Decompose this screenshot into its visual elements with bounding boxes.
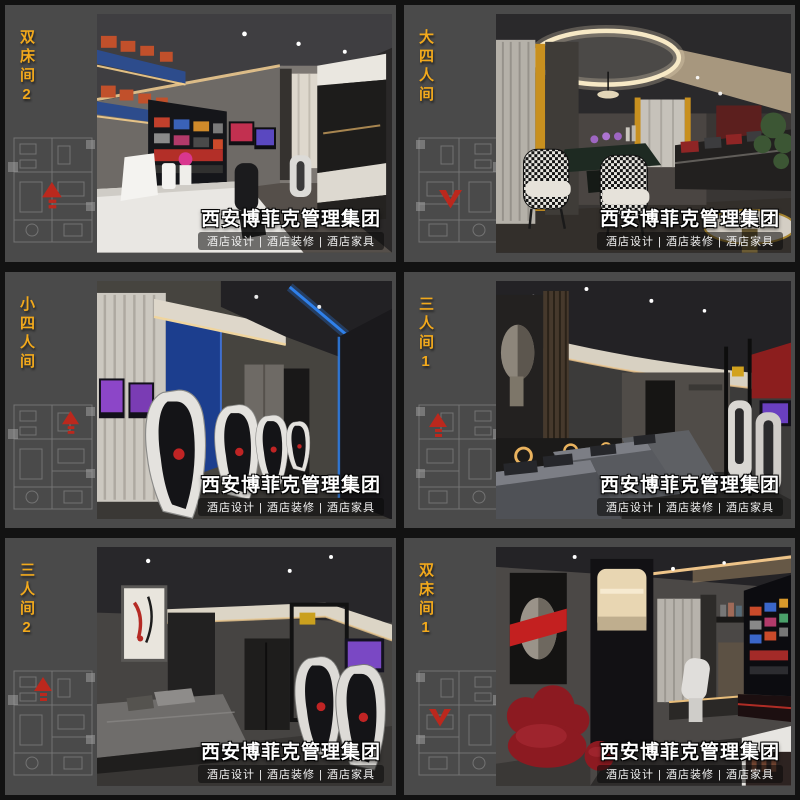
watermark-title: 西安博菲克管理集团	[201, 204, 381, 231]
room-label: 小四人间	[19, 296, 34, 372]
watermark-title: 西安博菲克管理集团	[201, 737, 381, 764]
view-arrow-icon	[429, 413, 447, 437]
room-card-triple-1: 三人间1	[404, 272, 795, 529]
watermark: 西安博菲克管理集团 酒店设计 | 酒店装修 | 酒店家具	[198, 204, 384, 250]
room-label: 三人间2	[19, 562, 34, 640]
view-arrow-icon	[34, 677, 52, 701]
view-arrow-icon	[429, 709, 451, 727]
floor-plan	[405, 398, 505, 518]
watermark: 西安博菲克管理集团 酒店设计 | 酒店装修 | 酒店家具	[198, 737, 384, 783]
watermark: 西安博菲克管理集团 酒店设计 | 酒店装修 | 酒店家具	[597, 470, 783, 516]
room-card-large-quad: 大四人间	[404, 5, 795, 262]
room-label: 三人间1	[418, 296, 433, 374]
watermark-subtitle: 酒店设计 | 酒店装修 | 酒店家具	[597, 765, 783, 783]
view-arrow-icon	[62, 411, 79, 434]
watermark-subtitle: 酒店设计 | 酒店装修 | 酒店家具	[198, 765, 384, 783]
floor-plan	[405, 131, 505, 251]
room-label: 大四人间	[418, 29, 433, 105]
room-card-small-quad: 小四人间	[5, 272, 396, 529]
watermark-title: 西安博菲克管理集团	[600, 204, 780, 231]
watermark-subtitle: 酒店设计 | 酒店装修 | 酒店家具	[198, 498, 384, 516]
room-photo-large-quad: 西安博菲克管理集团 酒店设计 | 酒店装修 | 酒店家具	[496, 14, 791, 253]
floor-plan	[6, 664, 106, 784]
room-photo-small-quad: 西安博菲克管理集团 酒店设计 | 酒店装修 | 酒店家具	[97, 281, 392, 520]
room-photo-triple-2: 西安博菲克管理集团 酒店设计 | 酒店装修 | 酒店家具	[97, 547, 392, 786]
watermark-title: 西安博菲克管理集团	[600, 737, 780, 764]
room-photo-twin-2: 西安博菲克管理集团 酒店设计 | 酒店装修 | 酒店家具	[97, 14, 392, 253]
room-card-twin-2: 双床间2	[5, 5, 396, 262]
watermark: 西安博菲克管理集团 酒店设计 | 酒店装修 | 酒店家具	[198, 470, 384, 516]
room-label: 双床间1	[418, 562, 433, 640]
room-card-triple-2: 三人间2	[5, 538, 396, 795]
room-label: 双床间2	[19, 29, 34, 107]
room-photo-triple-1: 西安博菲克管理集团 酒店设计 | 酒店装修 | 酒店家具	[496, 281, 791, 520]
room-photo-twin-1: 西安博菲克管理集团 酒店设计 | 酒店装修 | 酒店家具	[496, 547, 791, 786]
room-card-twin-1: 双床间1	[404, 538, 795, 795]
watermark: 西安博菲克管理集团 酒店设计 | 酒店装修 | 酒店家具	[597, 737, 783, 783]
floor-plan	[6, 131, 106, 251]
room-gallery: 双床间2	[0, 0, 800, 800]
watermark-subtitle: 酒店设计 | 酒店装修 | 酒店家具	[597, 232, 783, 250]
watermark: 西安博菲克管理集团 酒店设计 | 酒店装修 | 酒店家具	[597, 204, 783, 250]
floor-plan	[405, 664, 505, 784]
watermark-title: 西安博菲克管理集团	[600, 470, 780, 497]
watermark-subtitle: 酒店设计 | 酒店装修 | 酒店家具	[198, 232, 384, 250]
floor-plan	[6, 398, 106, 518]
watermark-title: 西安博菲克管理集团	[201, 470, 381, 497]
watermark-subtitle: 酒店设计 | 酒店装修 | 酒店家具	[597, 498, 783, 516]
